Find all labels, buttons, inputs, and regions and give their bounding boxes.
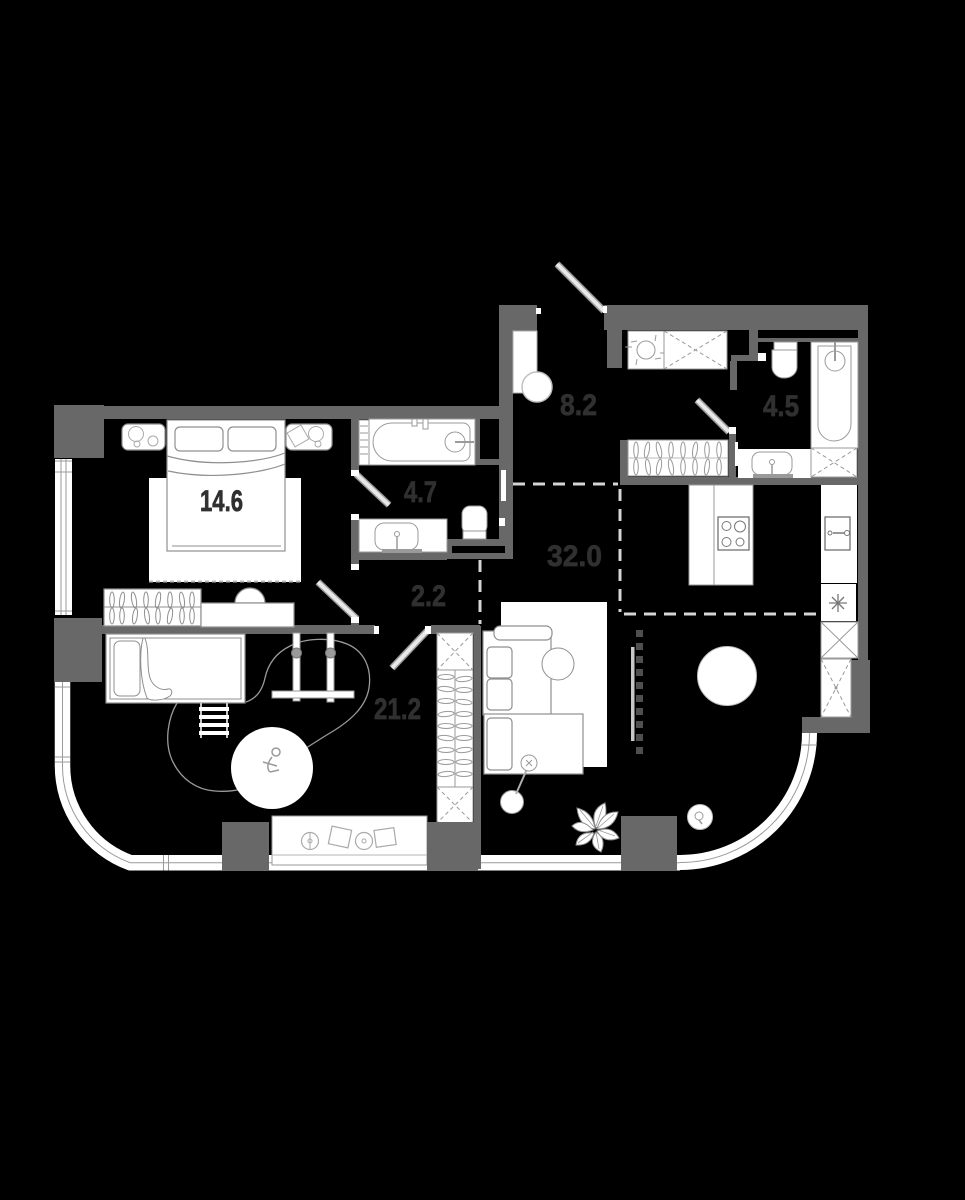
svg-text:4.7: 4.7 <box>404 476 437 509</box>
svg-text:2.2: 2.2 <box>411 580 446 613</box>
svg-text:4.5: 4.5 <box>763 390 799 423</box>
svg-text:14.6: 14.6 <box>200 485 243 518</box>
svg-text:8.2: 8.2 <box>560 389 597 422</box>
svg-text:21.2: 21.2 <box>374 693 421 726</box>
svg-text:32.0: 32.0 <box>547 540 602 573</box>
